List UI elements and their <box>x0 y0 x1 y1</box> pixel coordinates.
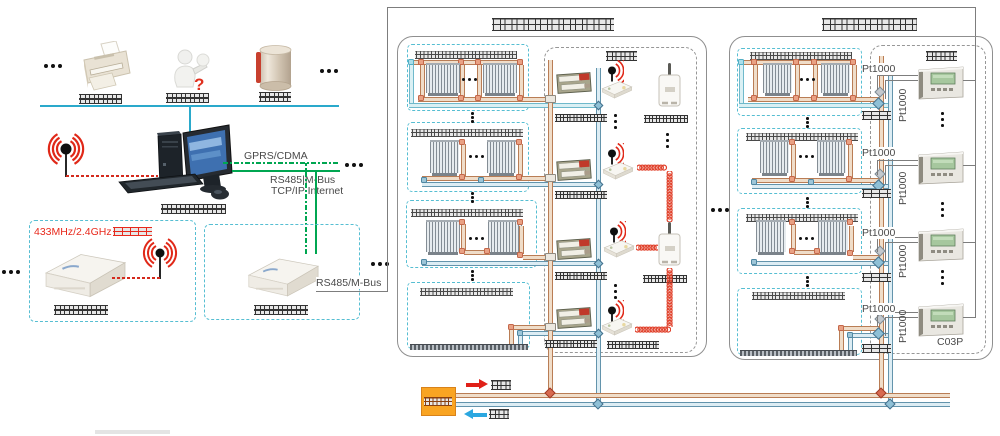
svg-text:?: ? <box>194 75 204 93</box>
